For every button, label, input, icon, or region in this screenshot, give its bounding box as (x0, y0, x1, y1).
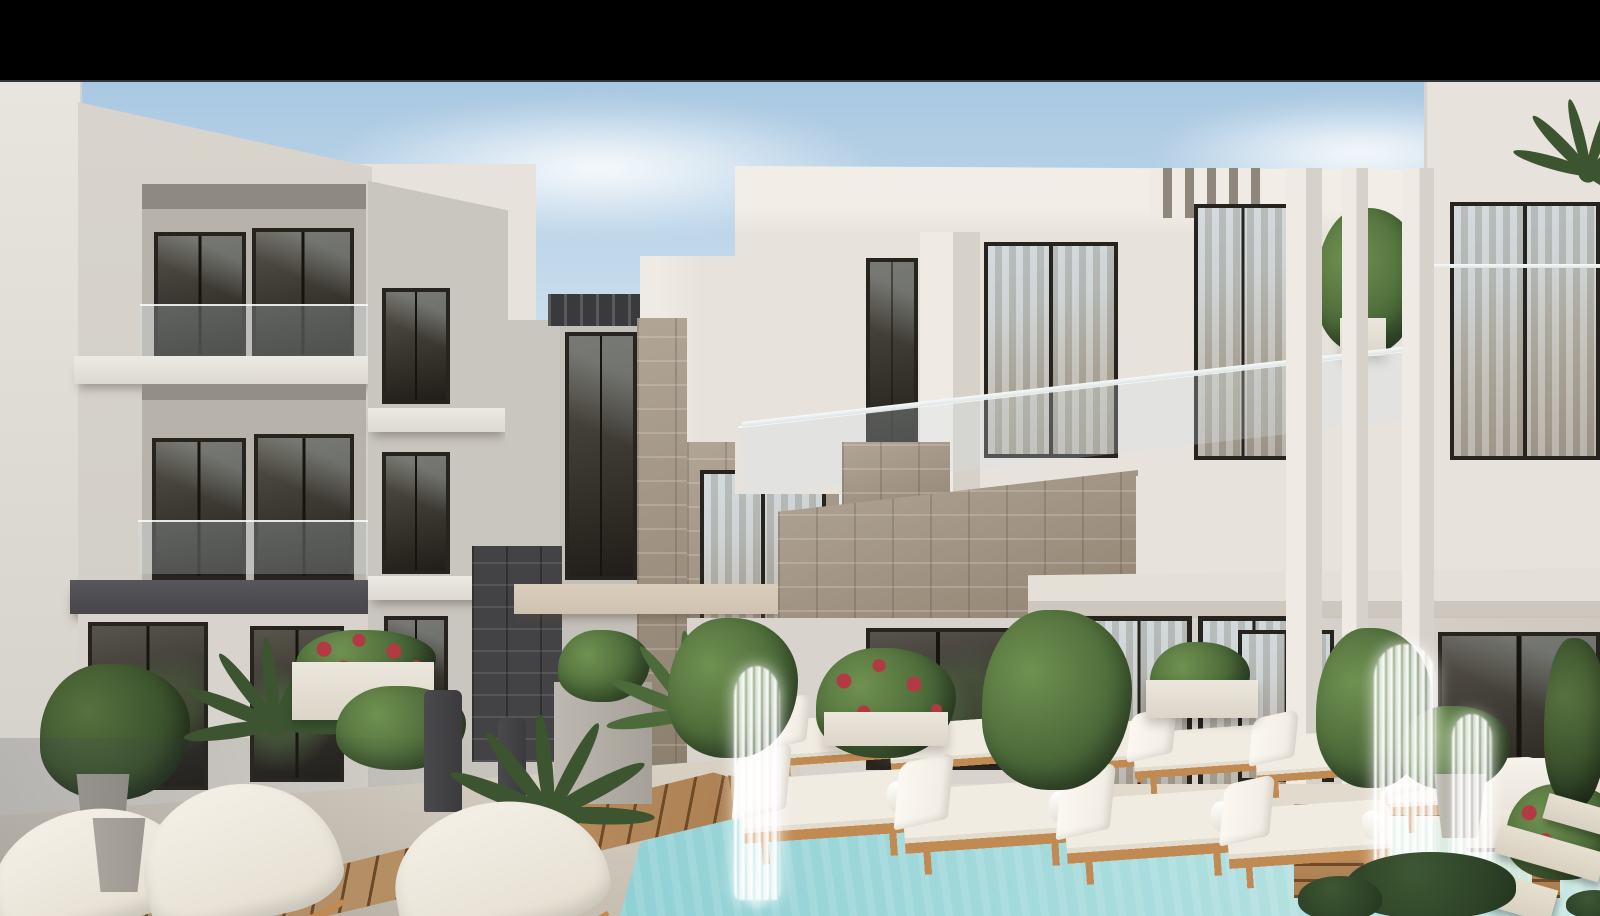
glass-railing (138, 520, 372, 574)
flower-planter (824, 712, 948, 746)
roof-fascia (735, 166, 1427, 236)
rendered-scene (0, 18, 1600, 916)
shrub (1298, 876, 1382, 916)
window (382, 288, 450, 404)
balcony-slab (74, 356, 376, 384)
corner-greens (1544, 638, 1600, 808)
window (565, 332, 637, 580)
charcoal-slab (70, 580, 382, 614)
white-parapet (1136, 464, 1428, 584)
glass-railing (140, 304, 370, 364)
flower-planter (1146, 680, 1258, 718)
window (382, 452, 450, 574)
letterbox-bar (0, 18, 1600, 82)
balcony-slab (368, 408, 508, 432)
